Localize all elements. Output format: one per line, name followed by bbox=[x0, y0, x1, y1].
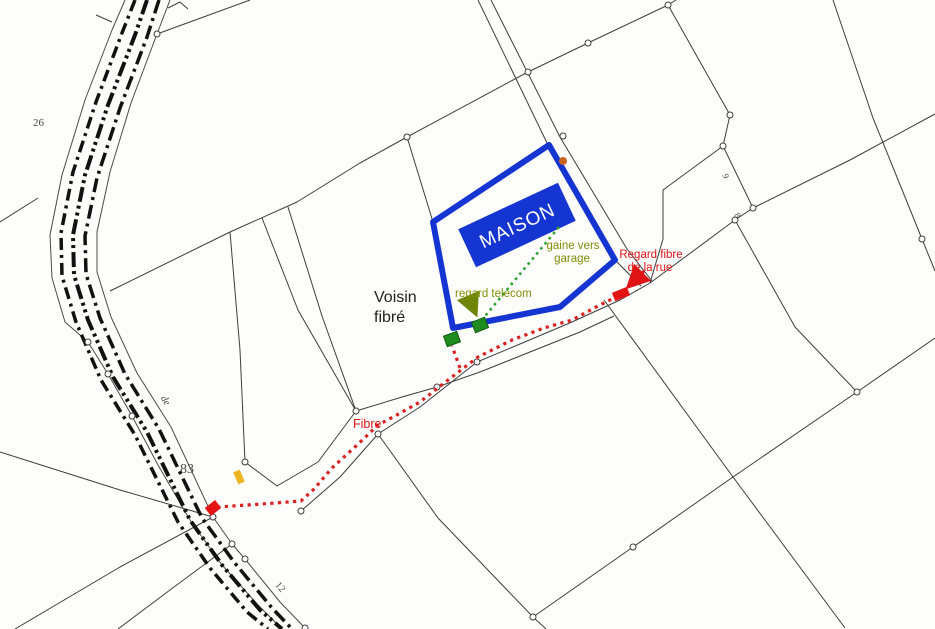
fiber-branch-to-manhole bbox=[452, 346, 460, 368]
gaine-label-line1: gaine vers bbox=[546, 240, 599, 252]
yellow-marker bbox=[233, 470, 245, 485]
fiber-manhole-road bbox=[205, 500, 221, 516]
parcel-number-12: 12 bbox=[272, 580, 287, 595]
cadastral-map: 26 83 12 de 9 8 MAISON bbox=[0, 0, 935, 629]
parcel-number-26: 26 bbox=[33, 117, 45, 129]
voisin-label-line2: fibré bbox=[374, 309, 405, 326]
regard-telecom-arrow bbox=[469, 298, 475, 312]
parcel-lines bbox=[0, 0, 935, 629]
regard-fibre-label-line2: de la rue bbox=[628, 262, 673, 274]
fibre-label: Fibre bbox=[353, 417, 382, 431]
annotations: Voisin fibré gaine vers garage regard te… bbox=[353, 240, 683, 431]
parcel-numbers: 26 83 12 de 9 8 bbox=[33, 117, 743, 595]
parcel-number-9: 9 bbox=[720, 172, 731, 180]
orange-dot-marker bbox=[559, 157, 567, 165]
map-canvas: 26 83 12 de 9 8 MAISON bbox=[0, 0, 935, 629]
regard-fibre-label-line1: Regard fibre bbox=[619, 249, 682, 261]
road-center-marking bbox=[73, 0, 282, 629]
voisin-label-line1: Voisin bbox=[374, 289, 417, 306]
telecom-manhole-path bbox=[444, 331, 461, 346]
road-right-edge bbox=[97, 0, 305, 628]
regard-telecom-label: regard telecom bbox=[455, 288, 532, 300]
road-name-fragment: de bbox=[158, 394, 173, 408]
fiber-route bbox=[205, 287, 630, 516]
parcel-number-83: 83 bbox=[180, 462, 194, 477]
road-left-edge bbox=[50, 0, 282, 629]
gaine-label-line2: garage bbox=[554, 253, 590, 265]
road bbox=[50, 0, 305, 629]
